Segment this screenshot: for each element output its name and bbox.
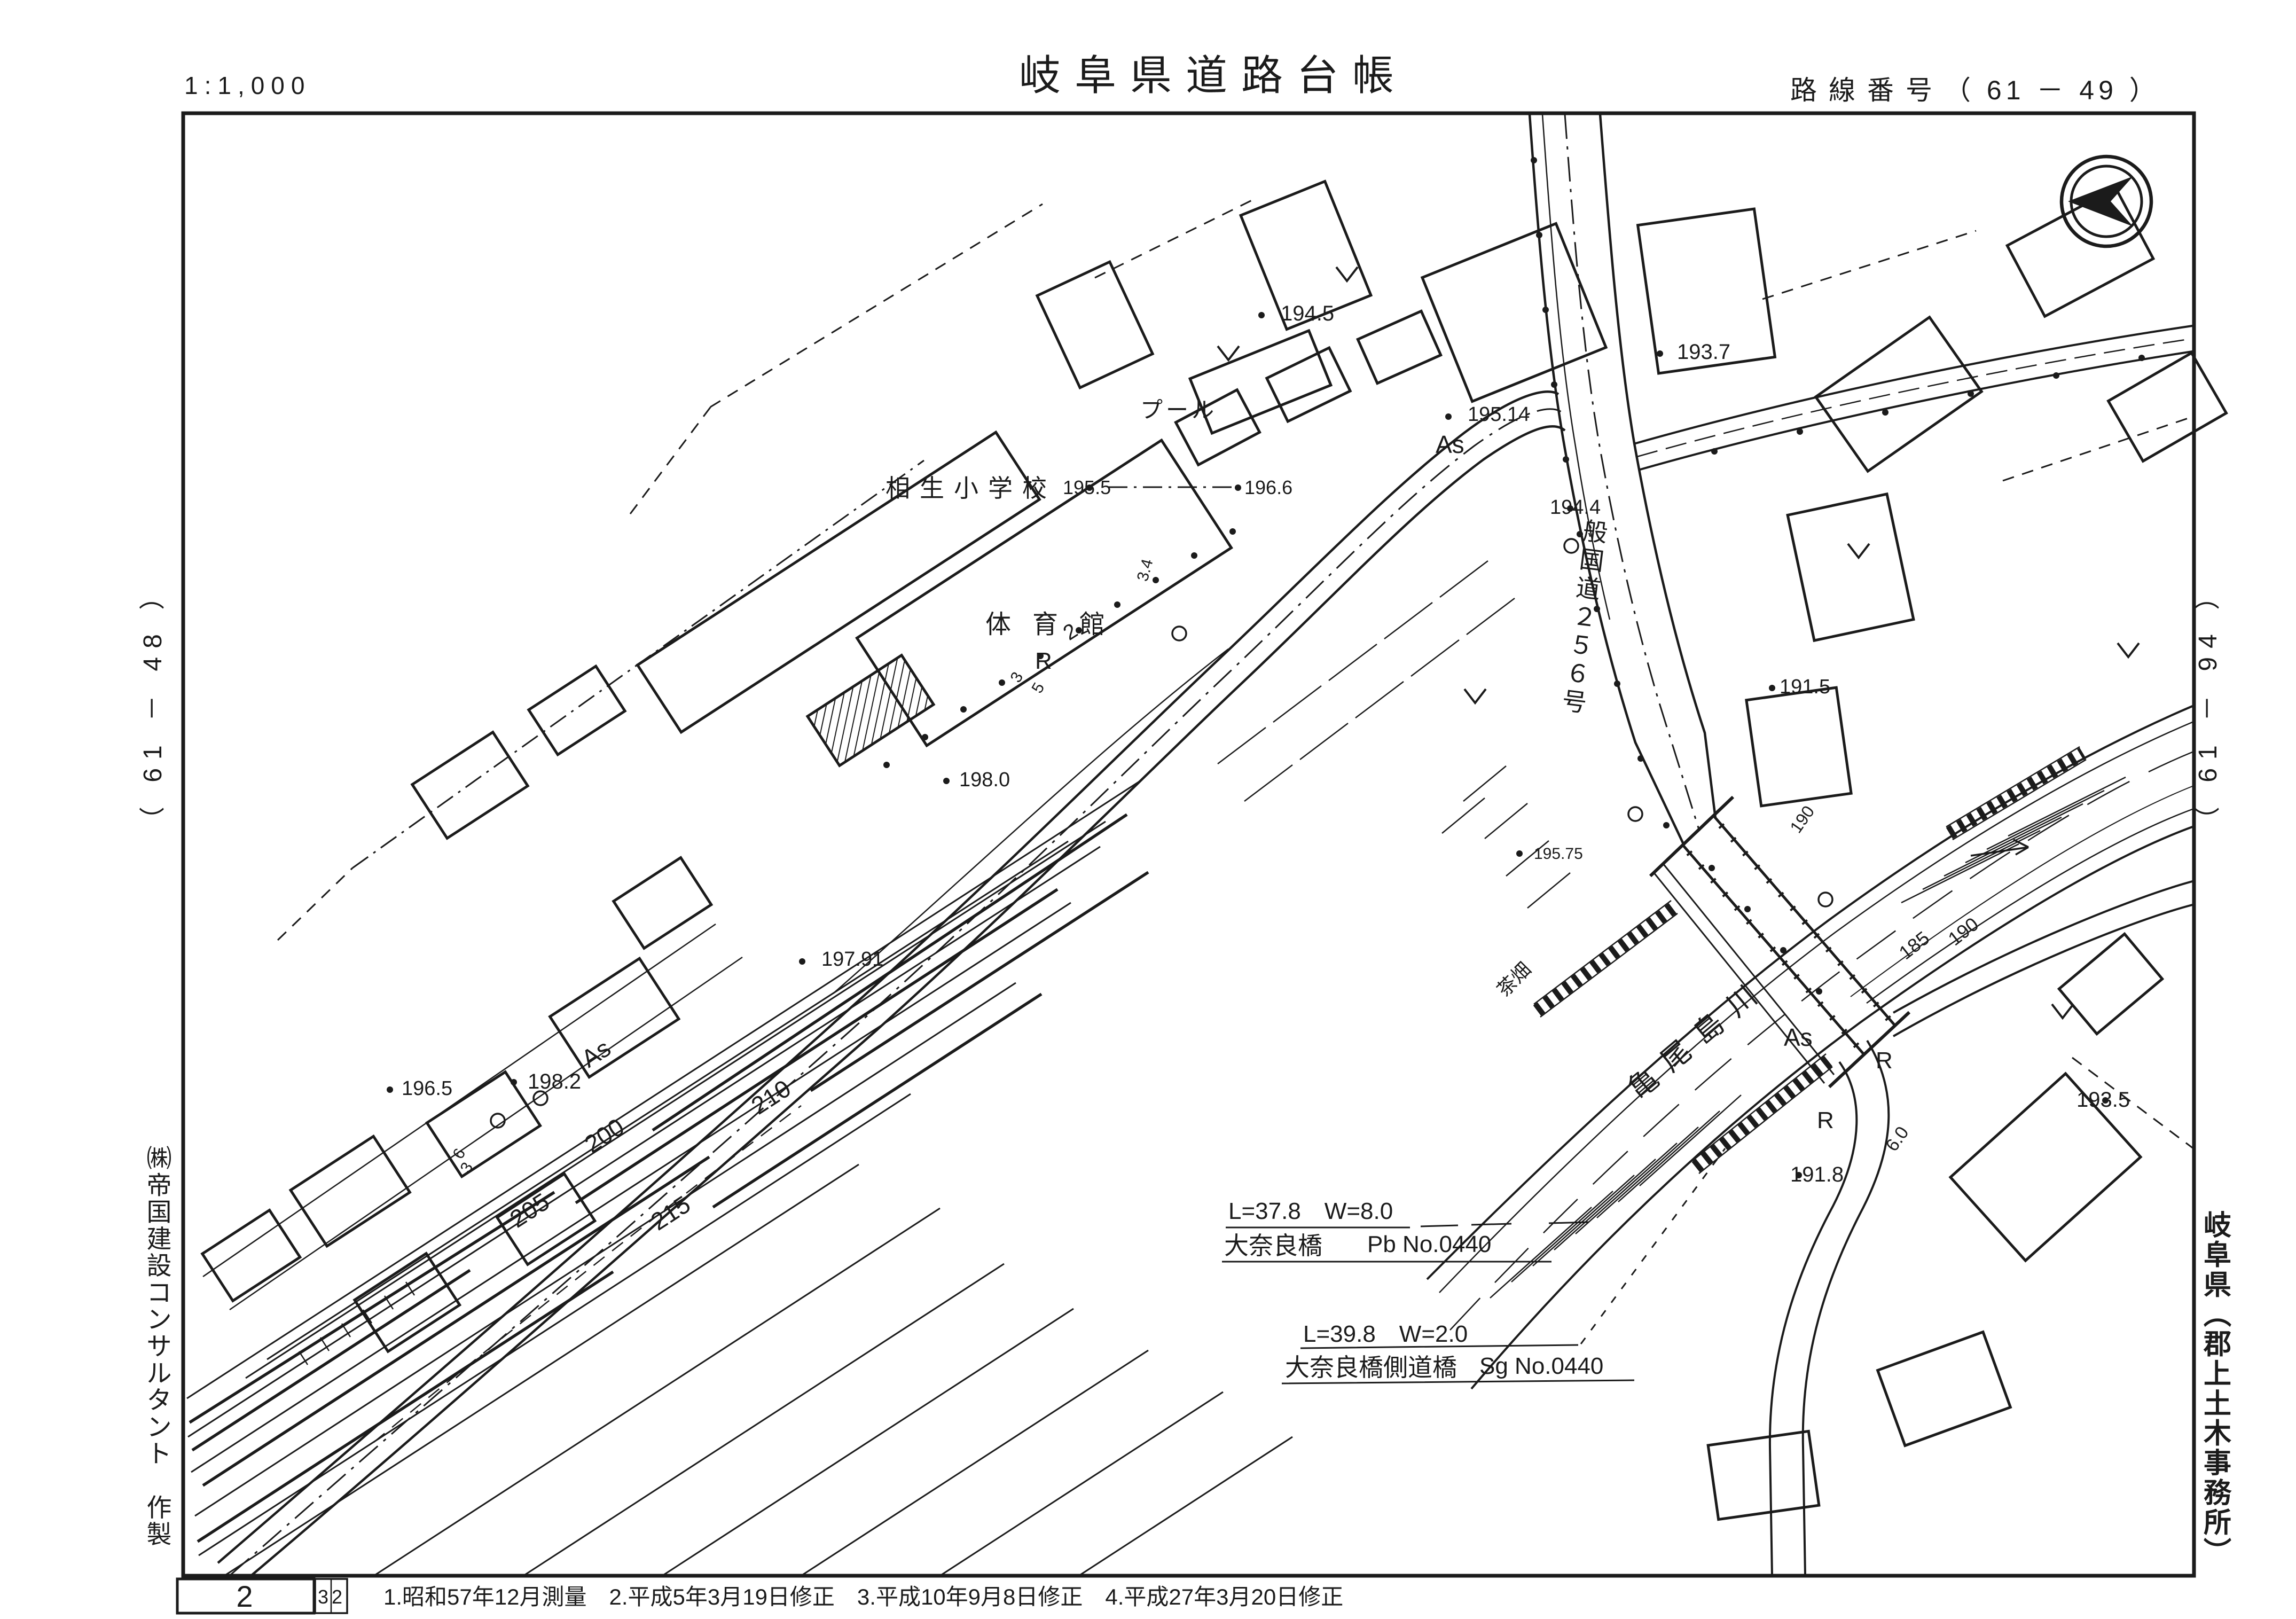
map-label: 193.7 — [1677, 340, 1730, 364]
spot-elevation-dot — [511, 1079, 517, 1085]
spot-elevation-dot — [1086, 484, 1093, 491]
building-layer — [202, 182, 2227, 1520]
map-label: 体育館 — [985, 611, 1126, 639]
map-label: 亀尾島川 — [1622, 971, 1774, 1106]
route-number-label: 路線番号 — [1790, 75, 1944, 105]
scale-label: 1:1,000 — [184, 72, 311, 99]
route-number-value: （ 61 － 49 ） — [1944, 75, 2160, 105]
spot-elevation-dot — [1796, 1172, 1802, 1178]
page-title: 岐阜県道路台帳 — [1019, 52, 1408, 99]
map-labels: 194.5193.7プール195.14As相生小学校195.5196.6194.… — [402, 302, 2130, 1235]
spot-elevation-dot — [387, 1086, 393, 1093]
map-label: 6 — [449, 1146, 469, 1162]
spot-elevation-dot — [1567, 505, 1573, 512]
map-label: 200 — [579, 1113, 629, 1158]
map-label: 190 — [1786, 802, 1818, 836]
map-label: 194.5 — [1281, 302, 1334, 325]
spot-elevation-dots — [387, 312, 2109, 1178]
road-ledger-sheet: 1:1,000 岐阜県道路台帳 路線番号 （ 61 － 49 ） — [0, 0, 2296, 1619]
symbol-layer — [278, 157, 2200, 1154]
map-label: 194.4 — [1550, 496, 1601, 519]
sheet-number: 2 — [236, 1579, 253, 1613]
spot-elevation-dot — [1235, 484, 1241, 491]
side-bridge-dims: L=39.8 W=2.0 — [1303, 1321, 1468, 1347]
authority-credit: 岐阜県︵郡上土木事務所︶ — [2203, 1210, 2232, 1568]
side-bridge-name: 大奈良橋側道橋 — [1285, 1354, 1457, 1381]
north-arrow-icon — [2062, 157, 2151, 246]
bridge-callouts: L=37.8 W=8.0 大奈良橋 Pb No.0440 L=39.8 W=2.… — [1222, 1148, 1725, 1383]
margin-captions: （ 61 － 48 ）（ 61 － 94 ）㈱帝国建設コンサルタント 作製岐阜県… — [139, 576, 2232, 1568]
map-label: As — [1784, 1023, 1813, 1051]
contour-layer — [187, 780, 1292, 1576]
spot-elevation-dot — [799, 958, 805, 965]
bridge-no: Pb No.0440 — [1367, 1231, 1491, 1257]
map-label: 般国道２５６号 — [1561, 517, 1609, 717]
map-label: 195.75 — [1534, 845, 1583, 863]
side-bridge-no: Sg No.0440 — [1479, 1353, 1603, 1379]
map-label: R — [1876, 1047, 1893, 1074]
map-label: R — [1035, 648, 1052, 674]
spot-elevation-dot — [1258, 312, 1265, 318]
map-label: 198.2 — [528, 1070, 581, 1093]
map-label: 196.5 — [402, 1077, 452, 1100]
revision-notes: 1.昭和57年12月測量 2.平成5年3月19日修正 3.平成10年9月8日修正… — [383, 1584, 1343, 1609]
spot-elevation-dot — [1445, 413, 1452, 420]
spot-elevation-dot — [1516, 850, 1523, 857]
bridge-name: 大奈良橋 — [1224, 1232, 1322, 1260]
map-label: 195.14 — [1468, 403, 1530, 426]
map-label: 185 — [1895, 927, 1934, 964]
map-label: プール — [1140, 397, 1217, 423]
map-label: 198.0 — [959, 769, 1010, 791]
right-sheet-ref: （ 61 － 94 ） — [2194, 576, 2222, 832]
map-label: 5 — [1028, 680, 1048, 697]
map-label: As — [1436, 431, 1464, 458]
spot-elevation-dot — [1769, 685, 1775, 691]
map-canvas: 1:1,000 岐阜県道路台帳 路線番号 （ 61 － 49 ） — [0, 0, 2296, 1619]
map-label: 茶畑 — [1493, 958, 1535, 1001]
map-label: 196.6 — [1244, 476, 1292, 498]
spot-elevation-dot — [1657, 350, 1663, 357]
bridge-dims: L=37.8 W=8.0 — [1228, 1198, 1393, 1224]
footer-layer: 2 32 1.昭和57年12月測量 2.平成5年3月19日修正 3.平成10年9… — [177, 1579, 1343, 1613]
map-label: 相生小学校 — [886, 474, 1056, 502]
map-label: 197.91 — [821, 948, 883, 971]
map-label: 210 — [746, 1074, 796, 1120]
spot-elevation-dot — [2102, 1097, 2109, 1104]
sheet-sub-number: 32 — [318, 1586, 346, 1608]
map-label: 191.5 — [1780, 676, 1830, 698]
producer-credit: ㈱帝国建設コンサルタント 作製 — [147, 1144, 172, 1548]
spot-elevation-dot — [943, 778, 950, 784]
left-sheet-ref: （ 61 － 48 ） — [139, 576, 167, 832]
road-layer — [203, 114, 2192, 1576]
map-label: R — [1817, 1107, 1834, 1133]
map-label: 6.0 — [1882, 1123, 1913, 1155]
